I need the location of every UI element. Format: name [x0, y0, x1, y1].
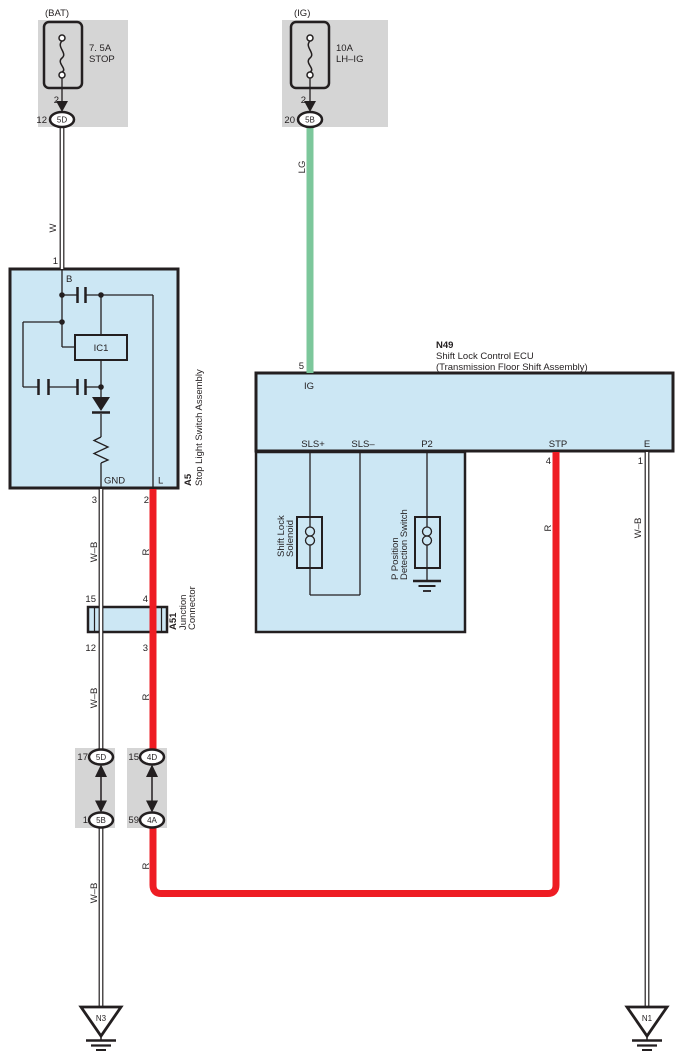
wire-wb-label: W–B: [89, 883, 100, 904]
ecu-name-label: (Transmission Floor Shift Assembly): [436, 362, 588, 373]
bat-header-label: (BAT): [45, 8, 69, 19]
ecu-terminal-sls-plus-label: SLS+: [301, 439, 325, 450]
wire-wb-label: W–B: [633, 518, 644, 539]
ecu-name-label: Shift Lock Control ECU: [436, 351, 534, 362]
a5-terminal-gnd-label: GND: [104, 476, 125, 487]
ecu-pin-e-label: 1: [638, 456, 643, 467]
conn-right-top-code-label: 4D: [147, 753, 157, 762]
conn-right-bottom-code-label: 4A: [147, 816, 157, 825]
wire-lg-label: LG: [297, 161, 308, 174]
conn-right-bottom-no-label: 59: [128, 815, 139, 826]
bat-rating-label: 7. 5A: [89, 43, 112, 54]
ig-fuse-shield: [282, 20, 388, 127]
wire-w-label: W: [48, 223, 59, 232]
ecu-terminal-ig-label: IG: [304, 381, 314, 392]
wire-wb-label: W–B: [89, 688, 100, 709]
wire-r-label: R: [141, 862, 152, 869]
conn-left-top-no-label: 17: [77, 752, 88, 763]
a5-id-label: A5: [183, 473, 194, 486]
ecu-id-label: N49: [436, 340, 453, 351]
solenoid-name-label: Solenoid: [285, 520, 296, 557]
a51-pin-4-label: 4: [143, 594, 148, 605]
ecu-pin-stp-label: 4: [546, 456, 551, 467]
wire-wb-label: W–B: [89, 542, 100, 563]
a51-pin-12-label: 12: [85, 643, 96, 654]
ig-header-label: (IG): [294, 8, 310, 19]
ecu-terminal-stp-label: STP: [549, 439, 567, 450]
a5-name-label: Stop Light Switch Assembly: [194, 369, 205, 486]
bat-conn-no-label: 12: [36, 115, 47, 126]
conn-left-bottom-no-label: 1: [83, 815, 88, 826]
a51-name-label: Connector: [187, 586, 198, 630]
ig-pin-label: 2: [301, 95, 306, 106]
a51-pin-3-label: 3: [143, 643, 148, 654]
ground-n3-label: N3: [96, 1014, 107, 1023]
ig-conn-no-label: 20: [284, 115, 295, 126]
ic1-label: IC1: [94, 343, 109, 354]
pswitch-name-label: Detection Switch: [399, 509, 410, 580]
a51-pin-15-label: 15: [85, 594, 96, 605]
bat-conn-code-label: 5D: [57, 116, 67, 125]
a5-terminal-b-label: B: [66, 274, 72, 285]
wire-r-label: R: [543, 524, 554, 531]
ecu-pin-ig-label: 5: [299, 361, 304, 372]
bat-name-label: STOP: [89, 54, 115, 65]
ig-conn-code-label: 5B: [305, 116, 315, 125]
a5-pin-gnd-label: 3: [92, 495, 97, 506]
a5-terminal-l-label: L: [158, 476, 163, 487]
ecu-terminal-sls-minus-label: SLS–: [351, 439, 375, 450]
ground-n1-label: N1: [642, 1014, 653, 1023]
conn-left-bottom-code-label: 5B: [96, 816, 106, 825]
conn-left-top-code-label: 5D: [96, 753, 106, 762]
ig-rating-label: 10A: [336, 43, 354, 54]
wiring-diagram-page: (BAT) 7. 5A STOP 2 12 5D (IG) 10A LH–IG …: [0, 0, 684, 1063]
wire-r-label: R: [141, 693, 152, 700]
ig-name-label: LH–IG: [336, 54, 363, 65]
conn-right-top-no-label: 15: [128, 752, 139, 763]
a5-pin-top-label: 1: [53, 256, 58, 267]
a5-pin-l-label: 2: [144, 495, 149, 506]
wiring-diagram: (BAT) 7. 5A STOP 2 12 5D (IG) 10A LH–IG …: [0, 0, 684, 1063]
ecu-terminal-p2-label: P2: [421, 439, 433, 450]
bat-pin-label: 2: [54, 95, 59, 106]
ecu-terminal-e-label: E: [644, 439, 650, 450]
wire-r-label: R: [141, 548, 152, 555]
